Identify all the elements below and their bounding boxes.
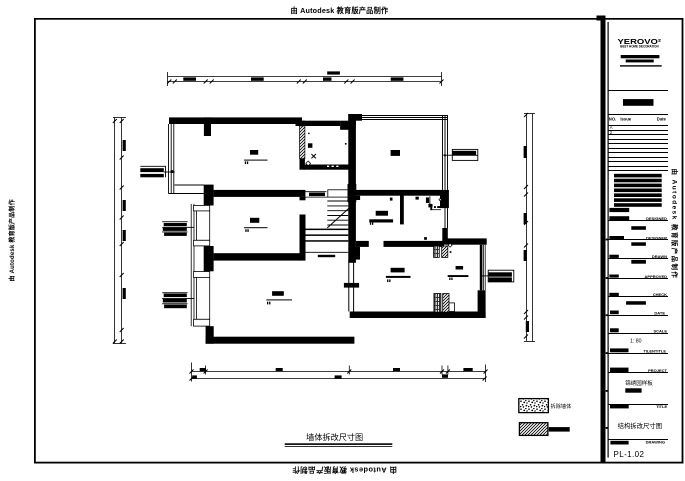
svg-text:DRAWING: DRAWING bbox=[646, 440, 665, 445]
svg-text:TITLE: TITLE bbox=[656, 404, 667, 409]
svg-text:Date: Date bbox=[657, 117, 667, 122]
svg-text:结构拆改尺寸图: 结构拆改尺寸图 bbox=[618, 421, 663, 430]
svg-text:TILENTITLE: TILENTITLE bbox=[643, 349, 666, 354]
svg-text:Issue: Issue bbox=[620, 117, 631, 122]
svg-text:由 Autodesk 教育版产品制作: 由 Autodesk 教育版产品制作 bbox=[292, 465, 397, 474]
svg-text:由 Autodesk 教育版产品制作: 由 Autodesk 教育版产品制作 bbox=[291, 6, 389, 15]
svg-text:由 Autodesk 教育版产品制作: 由 Autodesk 教育版产品制作 bbox=[670, 169, 679, 280]
svg-text:1: 80: 1: 80 bbox=[630, 338, 642, 344]
svg-text:NO.: NO. bbox=[609, 117, 616, 122]
svg-text:SCALE: SCALE bbox=[653, 329, 667, 334]
svg-text:PL-1.02: PL-1.02 bbox=[614, 450, 645, 459]
svg-text:BEST HOME DECORATION: BEST HOME DECORATION bbox=[620, 45, 659, 49]
svg-text:墙体拆改尺寸图: 墙体拆改尺寸图 bbox=[306, 432, 363, 442]
svg-text:拆除墙体: 拆除墙体 bbox=[551, 402, 573, 410]
svg-text:DATE: DATE bbox=[654, 311, 665, 316]
svg-text:由 Autodesk 教育版产品制作: 由 Autodesk 教育版产品制作 bbox=[8, 199, 16, 281]
svg-text:锦绣园样板: 锦绣园样板 bbox=[625, 379, 653, 387]
